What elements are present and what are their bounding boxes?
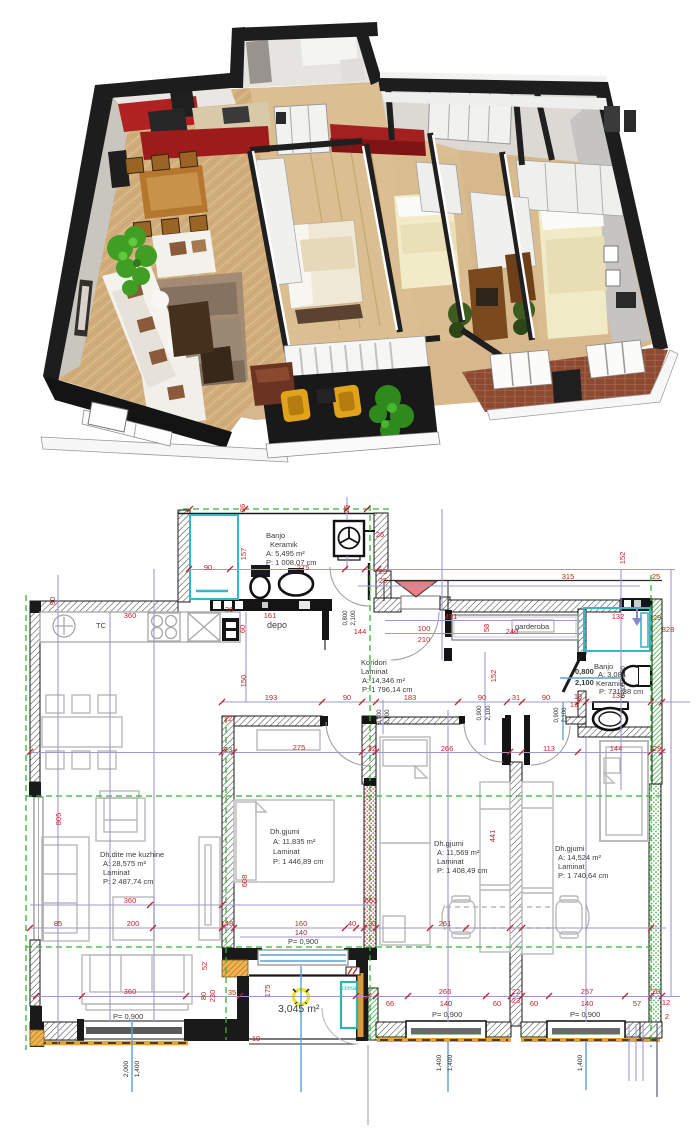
svg-text:0,900: 0,900 [477, 705, 483, 721]
svg-text:193: 193 [265, 693, 278, 702]
svg-text:441: 441 [488, 830, 497, 843]
svg-text:257: 257 [581, 987, 594, 996]
svg-text:90: 90 [542, 693, 550, 702]
svg-text:26: 26 [238, 504, 247, 512]
svg-text:132: 132 [612, 612, 625, 621]
svg-text:85: 85 [54, 919, 62, 928]
svg-text:22: 22 [224, 714, 232, 723]
svg-text:144: 144 [610, 744, 623, 753]
svg-text:26: 26 [225, 605, 233, 614]
svg-text:19: 19 [252, 1034, 260, 1043]
svg-text:Laminat: Laminat [361, 667, 389, 676]
svg-text:29: 29 [653, 744, 661, 753]
svg-text:152: 152 [618, 552, 627, 565]
svg-text:3,045 m²: 3,045 m² [278, 1003, 320, 1015]
svg-text:Dh.dite me kuzhine: Dh.dite me kuzhine [100, 850, 164, 859]
svg-text:360: 360 [124, 611, 137, 620]
svg-text:A: 5,495 m²: A: 5,495 m² [266, 549, 305, 558]
svg-text:A: 14,346 m²: A: 14,346 m² [362, 676, 405, 685]
svg-text:P: 1 408,49 cm: P: 1 408,49 cm [437, 866, 487, 875]
svg-text:113: 113 [543, 744, 555, 753]
svg-text:266: 266 [439, 987, 452, 996]
svg-text:1,400: 1,400 [436, 1054, 443, 1071]
svg-text:A: 14,524 m²: A: 14,524 m² [558, 853, 601, 862]
svg-text:0,900: 0,900 [377, 709, 383, 725]
svg-text:31: 31 [512, 693, 520, 702]
svg-text:P: 1 796,14 cm: P: 1 796,14 cm [362, 685, 412, 694]
svg-text:Laminat: Laminat [273, 847, 301, 856]
svg-text:140: 140 [581, 999, 594, 1008]
svg-text:23: 23 [512, 996, 520, 1005]
svg-text:2,100: 2,100 [385, 709, 391, 725]
svg-text:Dh.gjumi: Dh.gjumi [555, 844, 585, 853]
svg-text:23: 23 [224, 745, 232, 754]
svg-text:608: 608 [240, 875, 249, 888]
svg-text:Laminat: Laminat [103, 868, 131, 877]
svg-text:1,400: 1,400 [447, 1054, 454, 1071]
svg-text:A: 11,569 m²: A: 11,569 m² [437, 848, 480, 857]
svg-text:60: 60 [530, 999, 538, 1008]
svg-text:828: 828 [662, 625, 675, 634]
svg-text:230: 230 [208, 990, 217, 1003]
svg-text:553: 553 [365, 896, 378, 905]
svg-text:40: 40 [348, 919, 356, 928]
svg-text:Laminat: Laminat [437, 857, 465, 866]
svg-text:garderoba: garderoba [515, 622, 550, 631]
svg-text:360: 360 [124, 896, 137, 905]
svg-text:315: 315 [562, 572, 575, 581]
svg-text:25: 25 [379, 576, 387, 585]
svg-text:1,400: 1,400 [577, 1054, 584, 1071]
svg-text:0,900: 0,900 [554, 707, 560, 723]
svg-text:266: 266 [441, 744, 454, 753]
svg-text:12: 12 [662, 998, 670, 1007]
svg-text:160: 160 [295, 919, 308, 928]
svg-text:22: 22 [368, 744, 376, 753]
svg-text:200: 200 [127, 919, 140, 928]
svg-text:90: 90 [343, 693, 351, 702]
svg-text:805: 805 [54, 813, 63, 826]
svg-text:90: 90 [478, 693, 486, 702]
svg-text:P: 1 446,89 cm: P: 1 446,89 cm [273, 857, 323, 866]
svg-text:P: 1 740,64 cm: P: 1 740,64 cm [558, 871, 608, 880]
svg-text:90: 90 [48, 597, 57, 605]
svg-text:depo: depo [267, 620, 287, 630]
svg-text:210: 210 [418, 635, 431, 644]
svg-text:60: 60 [493, 999, 501, 1008]
svg-text:144: 144 [354, 627, 367, 636]
svg-text:TC: TC [96, 621, 107, 630]
svg-text:P= 0,900: P= 0,900 [432, 1010, 462, 1019]
svg-text:90: 90 [204, 563, 212, 572]
svg-text:Koridori: Koridori [361, 658, 387, 667]
svg-text:25: 25 [652, 572, 660, 581]
svg-text:100: 100 [418, 624, 431, 633]
svg-text:P: 2 487,74 cm: P: 2 487,74 cm [103, 877, 153, 886]
svg-text:2,100: 2,100 [575, 678, 594, 687]
svg-text:157: 157 [239, 548, 248, 561]
svg-text:66: 66 [386, 999, 394, 1008]
svg-text:80: 80 [199, 992, 208, 1000]
svg-text:140: 140 [440, 999, 453, 1008]
svg-text:2,100: 2,100 [562, 707, 568, 723]
svg-text:13: 13 [570, 700, 578, 709]
svg-text:148: 148 [221, 919, 234, 928]
svg-text:30: 30 [368, 919, 376, 928]
svg-text:2: 2 [665, 1012, 669, 1021]
svg-text:60: 60 [238, 625, 247, 633]
svg-text:152: 152 [489, 670, 498, 683]
svg-text:58: 58 [482, 624, 491, 632]
svg-text:25: 25 [342, 505, 351, 513]
svg-text:175: 175 [263, 985, 272, 998]
svg-text:Banjo: Banjo [266, 531, 285, 540]
svg-text:140: 140 [295, 928, 308, 937]
svg-text:261: 261 [439, 919, 452, 928]
svg-text:183: 183 [404, 693, 417, 702]
svg-text:Keramik: Keramik [270, 540, 298, 549]
svg-text:25: 25 [379, 567, 387, 576]
svg-text:A: 28,575 m²: A: 28,575 m² [103, 859, 146, 868]
svg-text:150: 150 [239, 675, 248, 688]
svg-text:275: 275 [293, 743, 306, 752]
svg-text:360: 360 [124, 987, 137, 996]
svg-text:2,100: 2,100 [351, 610, 357, 626]
svg-text:P= 0,900: P= 0,900 [570, 1010, 600, 1019]
svg-text:491: 491 [445, 612, 458, 621]
svg-text:161: 161 [264, 611, 277, 620]
svg-text:0,800: 0,800 [575, 667, 594, 676]
svg-text:52: 52 [200, 962, 209, 970]
svg-text:clima: clima [342, 986, 357, 992]
svg-text:P= 0,900: P= 0,900 [288, 937, 318, 946]
svg-text:Laminat: Laminat [558, 862, 586, 871]
svg-text:P: 1 008,07 cm: P: 1 008,07 cm [266, 558, 316, 567]
svg-text:0,800: 0,800 [343, 610, 349, 626]
svg-text:13: 13 [574, 692, 582, 701]
svg-text:Dh.gjumi: Dh.gjumi [270, 827, 300, 836]
svg-text:0,800 2,100: 0,800 2,100 [621, 665, 627, 697]
svg-text:2,100: 2,100 [486, 705, 492, 721]
svg-text:A: 11,835 m²: A: 11,835 m² [273, 837, 316, 846]
svg-text:22: 22 [512, 987, 520, 996]
svg-text:57: 57 [633, 999, 641, 1008]
svg-text:35: 35 [228, 988, 236, 997]
svg-text:240: 240 [506, 627, 519, 636]
svg-text:1,400: 1,400 [134, 1060, 141, 1077]
svg-text:Dh.gjumi: Dh.gjumi [434, 839, 464, 848]
svg-text:P= 0,900: P= 0,900 [113, 1012, 143, 1021]
svg-text:29: 29 [653, 613, 661, 622]
svg-text:2,000: 2,000 [123, 1060, 130, 1077]
svg-text:26: 26 [376, 530, 384, 539]
svg-text:20: 20 [652, 987, 660, 996]
